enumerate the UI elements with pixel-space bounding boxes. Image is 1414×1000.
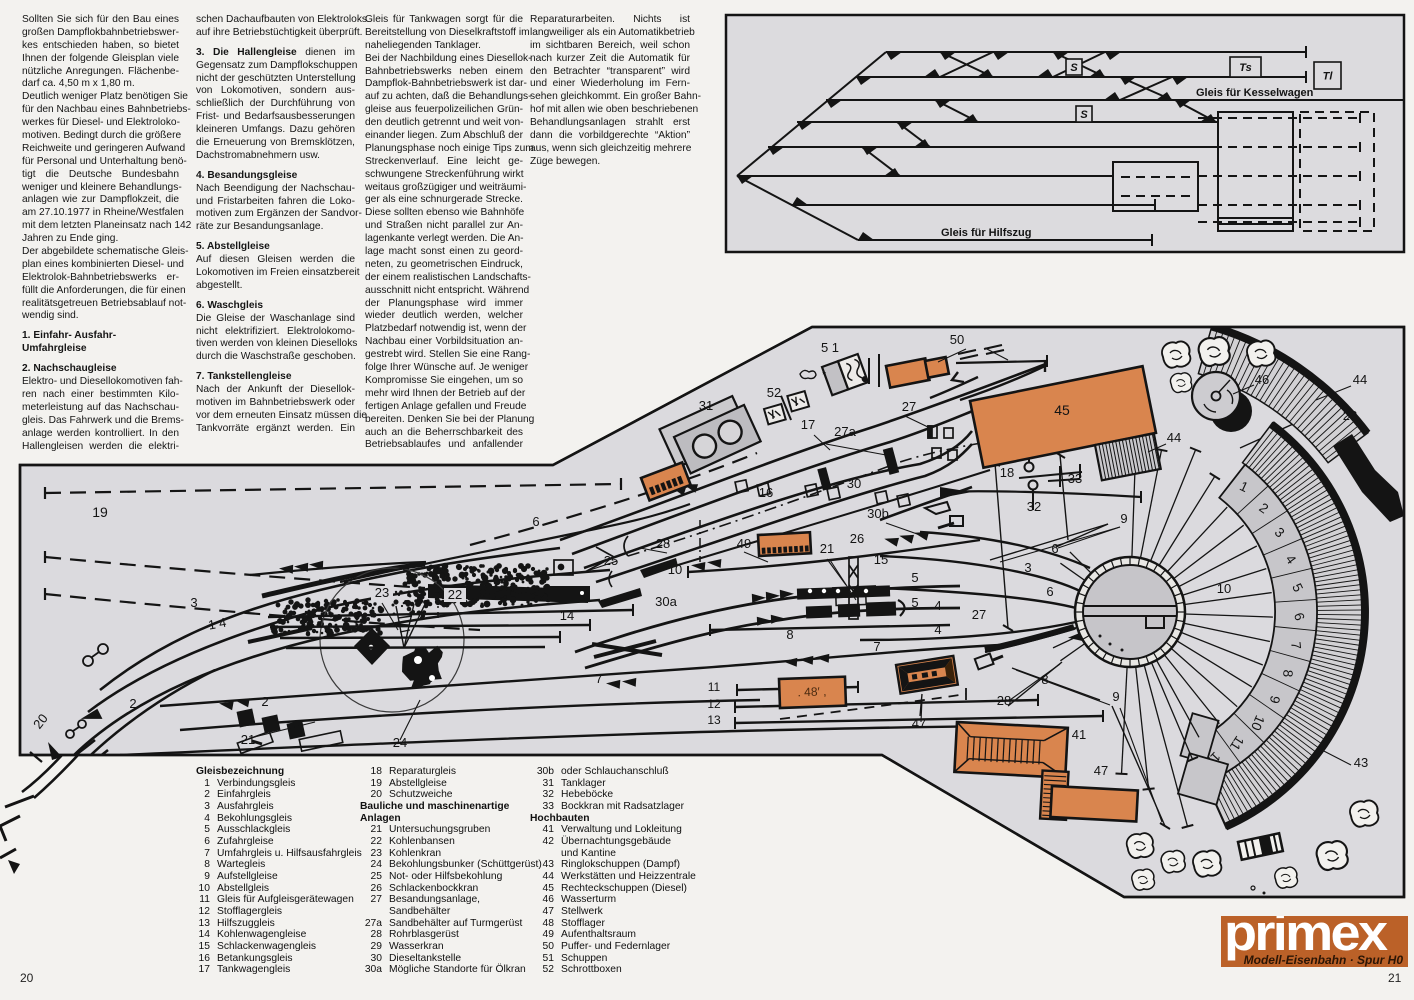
svg-text:6: 6 (532, 514, 539, 529)
svg-text:5: 5 (911, 570, 918, 585)
svg-text:2: 2 (261, 694, 268, 709)
svg-text:19: 19 (92, 504, 108, 520)
svg-text:16: 16 (759, 485, 773, 500)
svg-text:24: 24 (393, 735, 407, 750)
svg-text:46: 46 (1255, 372, 1269, 387)
svg-text:41: 41 (1072, 727, 1086, 742)
svg-text:47: 47 (912, 716, 926, 731)
svg-text:30b: 30b (867, 506, 889, 521)
svg-text:25: 25 (604, 553, 618, 568)
svg-text:32: 32 (1027, 499, 1041, 514)
svg-text:27: 27 (902, 399, 916, 414)
svg-text:47: 47 (1094, 763, 1108, 778)
svg-text:S: S (1070, 62, 1078, 74)
svg-text:11: 11 (708, 680, 721, 694)
svg-text:14: 14 (560, 608, 574, 623)
svg-text:26: 26 (850, 531, 864, 546)
svg-text:12: 12 (707, 697, 721, 711)
svg-text:1 4: 1 4 (207, 615, 227, 633)
svg-text:13: 13 (707, 713, 721, 727)
svg-text:31: 31 (699, 398, 713, 413)
svg-text:10: 10 (668, 562, 682, 577)
svg-text:3: 3 (190, 595, 197, 610)
svg-text:6: 6 (1046, 584, 1053, 599)
svg-text:4: 4 (934, 622, 941, 637)
svg-text:49: 49 (737, 536, 751, 551)
svg-text:44: 44 (1167, 430, 1181, 445)
svg-text:30: 30 (847, 476, 861, 491)
svg-text:Tl: Tl (1323, 70, 1334, 82)
svg-text:6: 6 (1051, 541, 1058, 556)
svg-text:50: 50 (950, 332, 964, 347)
svg-text:Gleis für Kesselwagen: Gleis für Kesselwagen (1196, 87, 1314, 99)
svg-text:27a: 27a (834, 424, 856, 439)
svg-text:4: 4 (934, 598, 941, 613)
svg-text:17: 17 (801, 417, 815, 432)
svg-text:45: 45 (1054, 402, 1070, 418)
svg-text:5: 5 (911, 595, 918, 610)
svg-text:23: 23 (375, 585, 389, 600)
svg-text:8: 8 (786, 627, 793, 642)
svg-text:21: 21 (241, 732, 255, 747)
svg-text:8: 8 (1280, 669, 1295, 678)
svg-text:28: 28 (1343, 408, 1357, 423)
svg-text:22: 22 (448, 587, 462, 602)
svg-text:33: 33 (1068, 471, 1082, 486)
svg-text:’’: ’’ (822, 371, 826, 382)
svg-text:Ts: Ts (1239, 62, 1251, 74)
svg-text:27: 27 (972, 607, 986, 622)
svg-text:3: 3 (1024, 560, 1031, 575)
svg-text:9: 9 (1112, 689, 1119, 704)
svg-text:30a: 30a (655, 594, 677, 609)
svg-text:2: 2 (129, 696, 136, 711)
svg-text:S: S (1080, 109, 1088, 121)
svg-text:43: 43 (1354, 755, 1368, 770)
svg-text:18: 18 (1000, 465, 1014, 480)
svg-text:7: 7 (595, 671, 602, 686)
svg-text:. 48′ ,: . 48′ , (797, 684, 826, 699)
svg-text:15: 15 (874, 552, 888, 567)
svg-text:28: 28 (997, 693, 1011, 708)
svg-text:5 1: 5 1 (821, 340, 839, 355)
svg-text:Gleis für Hilfszug: Gleis für Hilfszug (941, 227, 1031, 239)
svg-text:52: 52 (767, 385, 781, 400)
svg-text:10: 10 (1217, 581, 1231, 596)
svg-text:44: 44 (1353, 372, 1367, 387)
svg-text:7: 7 (1288, 641, 1304, 650)
svg-text:21: 21 (820, 541, 834, 556)
svg-text:7: 7 (873, 639, 880, 654)
svg-text:28: 28 (656, 536, 670, 551)
svg-text:9: 9 (1120, 511, 1127, 526)
